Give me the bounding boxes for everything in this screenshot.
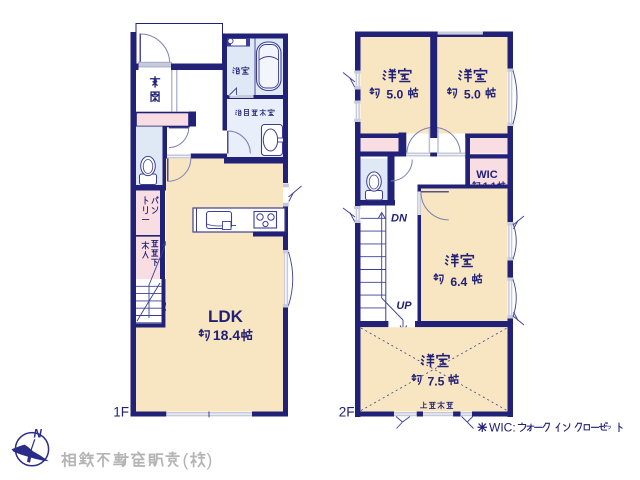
svg-text:N: N xyxy=(33,429,42,441)
svg-text:DN: DN xyxy=(391,213,408,225)
svg-text:5.0: 5.0 xyxy=(464,88,481,102)
svg-text:(: ( xyxy=(183,450,189,470)
svg-text:6.4: 6.4 xyxy=(450,275,467,289)
svg-text:5.0: 5.0 xyxy=(386,88,403,102)
svg-text:): ) xyxy=(207,450,213,470)
svg-text:1F: 1F xyxy=(113,405,129,420)
svg-text:LDK: LDK xyxy=(208,307,244,326)
svg-text:18.4: 18.4 xyxy=(213,327,240,343)
svg-text:WIC:: WIC: xyxy=(489,421,516,435)
svg-text:7.5: 7.5 xyxy=(428,375,445,389)
svg-text:UP: UP xyxy=(396,300,412,312)
svg-text:2F: 2F xyxy=(339,405,355,420)
svg-text:WIC: WIC xyxy=(476,169,497,181)
